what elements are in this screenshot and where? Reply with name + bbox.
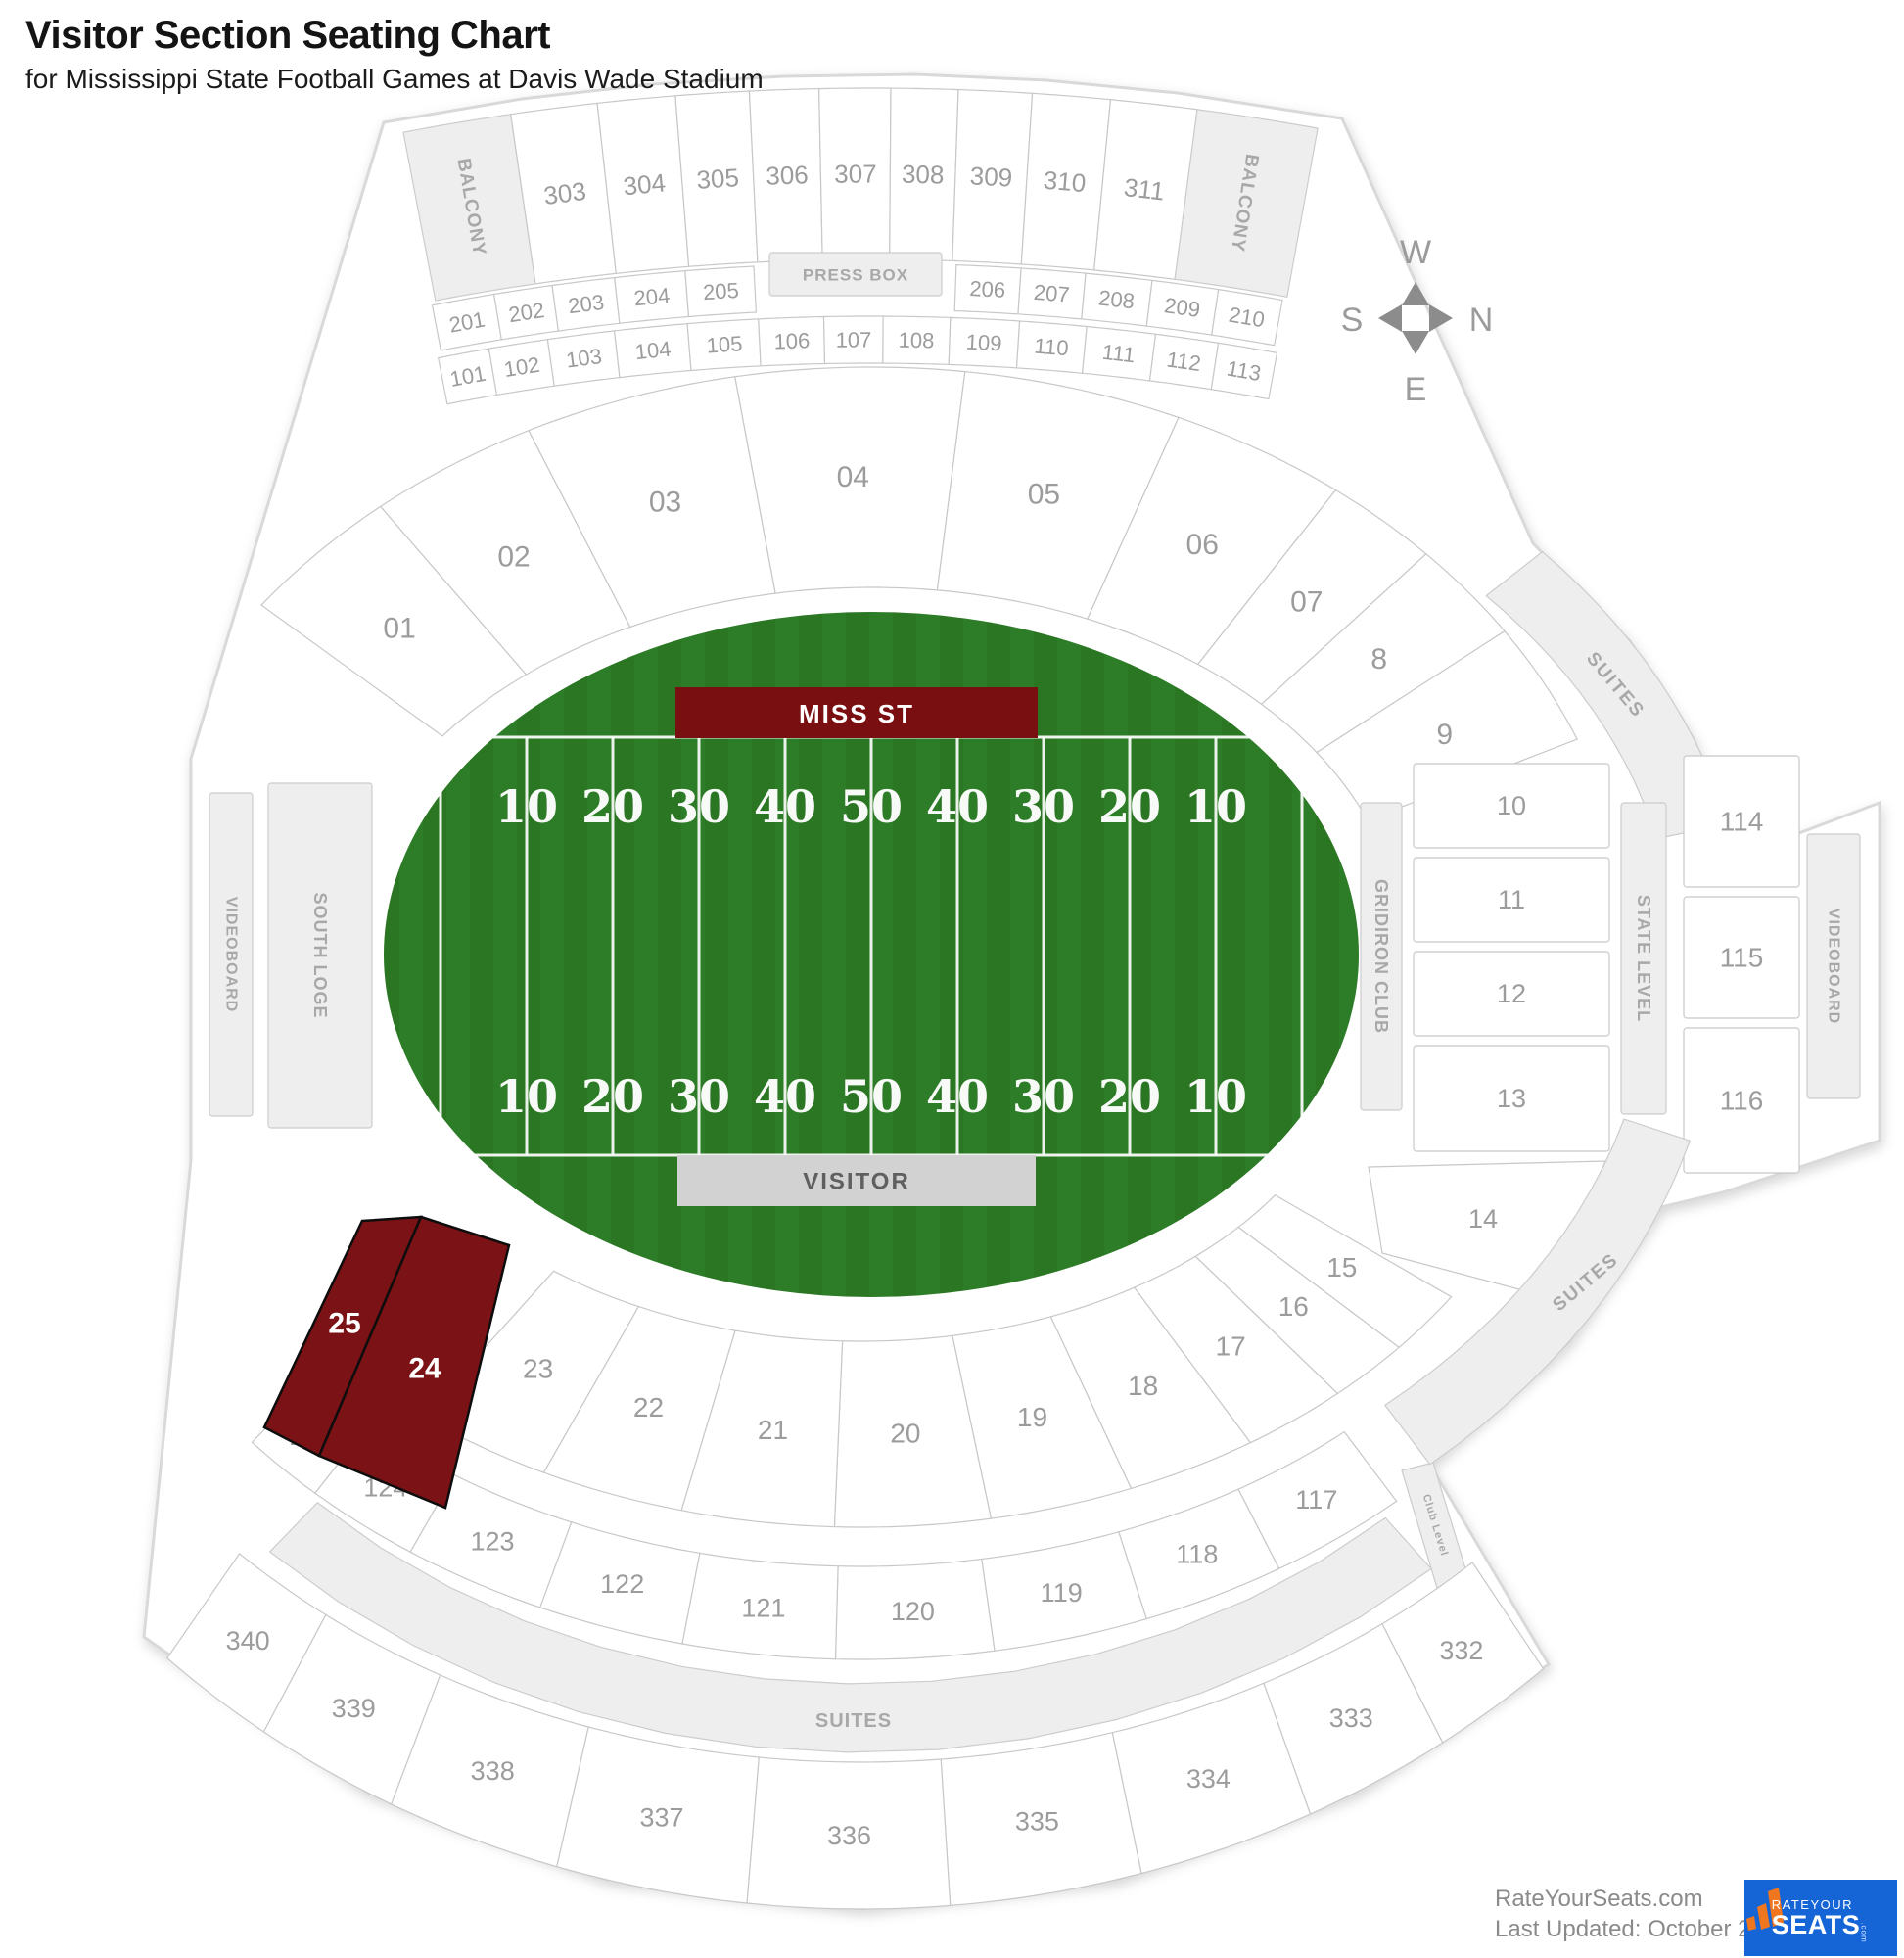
section-label-s16: 16 [1278, 1291, 1309, 1322]
yard-number: 10 [1184, 780, 1247, 833]
section-label-b336: 336 [827, 1821, 871, 1850]
section-label-s105: 105 [706, 331, 743, 357]
page-title: Visitor Section Seating Chart [25, 14, 764, 58]
section-label-s203: 203 [567, 290, 606, 318]
section-label-s309: 309 [969, 161, 1013, 192]
section-label-s114: 114 [1720, 807, 1764, 837]
stadium-map: 101020203030404050504040303020201010MISS… [0, 0, 1904, 1958]
yard-number: 40 [926, 780, 989, 833]
section-label-s09: 9 [1436, 719, 1453, 751]
section-label-s204: 204 [632, 283, 671, 310]
section-label-s25: 25 [328, 1308, 360, 1340]
section-label-s05: 05 [1028, 479, 1060, 511]
section-label-s305: 305 [696, 163, 740, 195]
section-label-suites-bottom: SUITES [815, 1710, 892, 1732]
yard-number: 40 [754, 780, 816, 833]
section-label-s06: 06 [1186, 529, 1219, 561]
yard-number: 30 [668, 780, 730, 833]
section-label-s04: 04 [837, 461, 869, 493]
section-label-s20: 20 [890, 1418, 920, 1448]
section-label-s103: 103 [565, 344, 604, 372]
compass-letter: S [1341, 302, 1364, 339]
section-label-s111: 111 [1101, 340, 1137, 368]
home-banner-label: MISS ST [799, 699, 914, 728]
section-label-g11: 11 [1498, 885, 1525, 914]
section-label-s308: 308 [902, 160, 945, 190]
section-label-s123: 123 [470, 1526, 514, 1556]
section-label-s121: 121 [741, 1594, 785, 1623]
section-label-b338: 338 [471, 1756, 515, 1786]
section-label-s15: 15 [1326, 1252, 1357, 1282]
page-subtitle: for Mississippi State Football Games at … [25, 64, 764, 95]
section-label-b333: 333 [1329, 1703, 1373, 1733]
section-label-s106: 106 [773, 328, 811, 353]
section-label-s116: 116 [1720, 1086, 1764, 1116]
section-label-s206: 206 [969, 276, 1006, 303]
yard-number: 20 [581, 780, 644, 833]
compass-letter: E [1405, 371, 1427, 408]
section-label-s07: 07 [1290, 585, 1323, 618]
section-label-south-loge: SOUTH LOGE [310, 892, 330, 1018]
section-label-b339: 339 [332, 1694, 376, 1723]
yard-number: 20 [1098, 1070, 1161, 1123]
logo-line1: RATEYOUR [1772, 1898, 1861, 1911]
section-label-s109: 109 [965, 329, 1002, 355]
section-label-s209: 209 [1163, 293, 1202, 322]
section-label-s104: 104 [634, 337, 673, 364]
section-label-s118: 118 [1176, 1540, 1218, 1569]
section-label-g10: 10 [1497, 791, 1526, 820]
section-label-s310: 310 [1043, 165, 1088, 198]
yard-number: 10 [495, 780, 558, 833]
compass-letter: N [1469, 302, 1494, 339]
yard-number: 40 [926, 1070, 989, 1123]
section-label-s02: 02 [497, 540, 530, 573]
section-label-s122: 122 [600, 1569, 644, 1599]
section-label-s311: 311 [1123, 172, 1167, 206]
section-label-s306: 306 [766, 160, 809, 190]
yard-number: 10 [1184, 1070, 1247, 1123]
section-label-b340: 340 [226, 1626, 270, 1655]
section-label-s23: 23 [523, 1353, 553, 1383]
yard-number: 10 [495, 1070, 558, 1123]
section-label-s110: 110 [1034, 334, 1070, 361]
section-label-s17: 17 [1216, 1330, 1246, 1361]
section-label-s120: 120 [891, 1597, 935, 1626]
logo-line2: SEATS [1772, 1912, 1861, 1938]
football-field: 101020203030404050504040303020201010MISS… [384, 612, 1359, 1297]
section-label-s207: 207 [1033, 280, 1071, 307]
section-label-s205: 205 [702, 278, 739, 304]
section-label-gridiron-club: GRIDIRON CLUB [1371, 879, 1391, 1034]
section-label-b332: 332 [1439, 1636, 1483, 1665]
compass-letter: W [1400, 234, 1431, 271]
section-label-videoboard-right: VIDEOBOARD [1826, 909, 1842, 1024]
section-label-s108: 108 [898, 328, 934, 353]
section-label-s304: 304 [622, 167, 667, 201]
yard-number: 30 [1012, 1070, 1075, 1123]
section-label-s08: 8 [1370, 643, 1387, 676]
yard-number: 50 [840, 780, 903, 833]
section-label-g14: 14 [1468, 1204, 1498, 1234]
section-label-b335: 335 [1015, 1807, 1059, 1837]
section-label-s117: 117 [1295, 1485, 1337, 1515]
seating-chart-page: Visitor Section Seating Chart for Missis… [0, 0, 1904, 1958]
section-label-s24: 24 [408, 1353, 441, 1385]
section-label-press-box: PRESS BOX [803, 266, 908, 285]
section-label-state-level: STATE LEVEL [1634, 895, 1653, 1022]
section-label-s112: 112 [1165, 347, 1202, 376]
section-label-s208: 208 [1097, 286, 1136, 314]
yard-number: 20 [581, 1070, 644, 1123]
logo-com: .com [1860, 1922, 1868, 1942]
section-label-s19: 19 [1017, 1402, 1047, 1432]
section-label-s115: 115 [1720, 943, 1764, 973]
yard-number: 30 [1012, 780, 1075, 833]
section-label-videoboard-left: VIDEOBOARD [223, 897, 240, 1012]
section-label-s21: 21 [758, 1415, 788, 1445]
section-label-s03: 03 [649, 487, 681, 519]
section-label-s307: 307 [834, 159, 877, 188]
compass-arrow-icon [1429, 304, 1453, 332]
section-label-s119: 119 [1041, 1578, 1083, 1608]
section-label-b337: 337 [639, 1802, 683, 1832]
section-label-s303: 303 [542, 176, 588, 210]
section-label-b334: 334 [1186, 1764, 1231, 1794]
header: Visitor Section Seating Chart for Missis… [25, 14, 764, 95]
section-label-g12: 12 [1497, 979, 1526, 1008]
yard-number: 40 [754, 1070, 816, 1123]
yard-number: 50 [840, 1070, 903, 1123]
yard-number: 30 [668, 1070, 730, 1123]
section-label-s107: 107 [836, 327, 872, 351]
section-label-s22: 22 [633, 1392, 664, 1422]
yard-number: 20 [1098, 780, 1161, 833]
section-label-g13: 13 [1497, 1084, 1526, 1113]
section-label-s01: 01 [383, 612, 415, 644]
visitor-banner-label: VISITOR [803, 1169, 910, 1195]
rateyourseats-logo: RATEYOUR SEATS .com [1744, 1880, 1897, 1956]
section-label-s18: 18 [1128, 1371, 1158, 1401]
